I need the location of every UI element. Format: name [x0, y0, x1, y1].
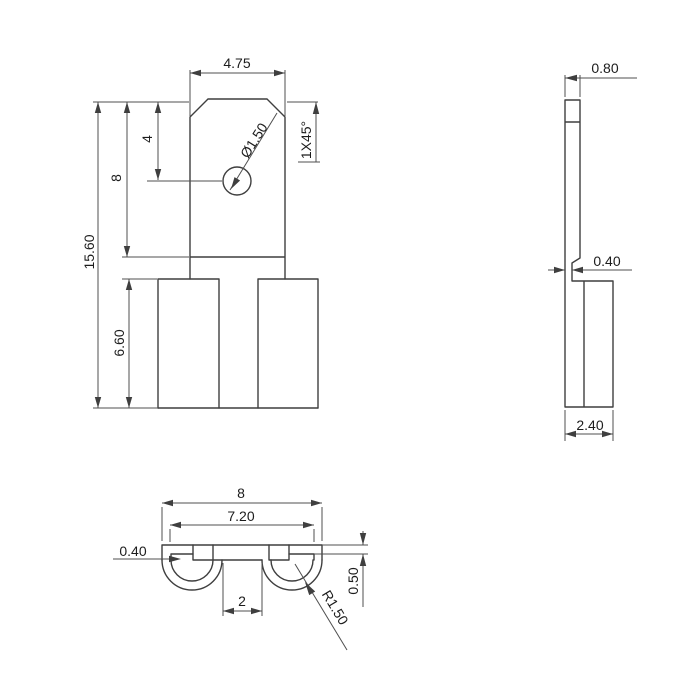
dim-label-tab-length: 8 — [108, 174, 124, 182]
engineering-drawing: 4.75 15.60 8 4 6.60 Ø1.50 1X45° — [0, 0, 700, 700]
dim-label-hole-offset: 4 — [139, 135, 155, 143]
arrowhead — [554, 267, 565, 273]
arrowhead — [95, 397, 101, 408]
arrowhead — [360, 554, 366, 566]
side-view: 0.80 0.40 2.40 — [548, 60, 637, 441]
bottom-leg-root-left — [193, 545, 213, 560]
arrowhead — [572, 267, 583, 273]
front-right-leg — [258, 279, 318, 408]
arrowhead — [155, 102, 161, 113]
front-view: 4.75 15.60 8 4 6.60 Ø1.50 1X45° — [81, 55, 320, 408]
dim-label-tab-width: 4.75 — [223, 55, 250, 71]
bottom-view: 8 7.20 0.40 2 0.50 R1.50 — [113, 485, 368, 650]
dim-label-hole-diameter: Ø1.50 — [237, 120, 271, 161]
arrowhead — [360, 533, 366, 545]
arrowhead — [223, 608, 234, 614]
dim-label-leg-gap: 2 — [238, 593, 246, 609]
bottom-leg-root-right — [269, 545, 289, 560]
arrowhead — [190, 70, 201, 76]
arrowhead — [162, 500, 173, 506]
arrowhead — [251, 608, 262, 614]
arrowhead — [95, 102, 101, 113]
front-left-leg — [158, 279, 219, 408]
arrowhead — [231, 177, 240, 189]
dim-label-chamfer: 1X45° — [298, 121, 314, 159]
arrowhead — [124, 246, 130, 257]
dim-label-leg-length: 6.60 — [111, 329, 127, 356]
arrowhead — [602, 431, 613, 437]
arrowhead — [303, 522, 314, 528]
dim-label-material-thickness: 0.40 — [593, 253, 620, 269]
dim-label-overall-length: 15.60 — [81, 234, 97, 269]
arrowhead — [169, 556, 181, 562]
front-tab-outline — [190, 99, 285, 279]
arrowhead — [126, 397, 132, 408]
arrowhead — [565, 431, 576, 437]
dim-label-overall-width: 8 — [237, 485, 245, 501]
arrowhead — [126, 279, 132, 290]
dim-label-strip-thickness: 0.50 — [345, 567, 361, 594]
arrowhead — [313, 102, 319, 114]
bottom-strip-outline — [162, 545, 322, 560]
arrowhead — [565, 75, 577, 81]
arrowhead — [170, 522, 181, 528]
arrowhead — [311, 500, 322, 506]
dim-label-inner-width: 7.20 — [227, 508, 254, 524]
arrowhead — [155, 169, 161, 180]
arrowhead — [124, 102, 130, 113]
dim-label-body-depth: 2.40 — [576, 417, 603, 433]
dim-label-wall-thickness: 0.40 — [119, 543, 146, 559]
dim-label-tab-thickness: 0.80 — [591, 60, 618, 76]
arrowhead — [274, 70, 285, 76]
